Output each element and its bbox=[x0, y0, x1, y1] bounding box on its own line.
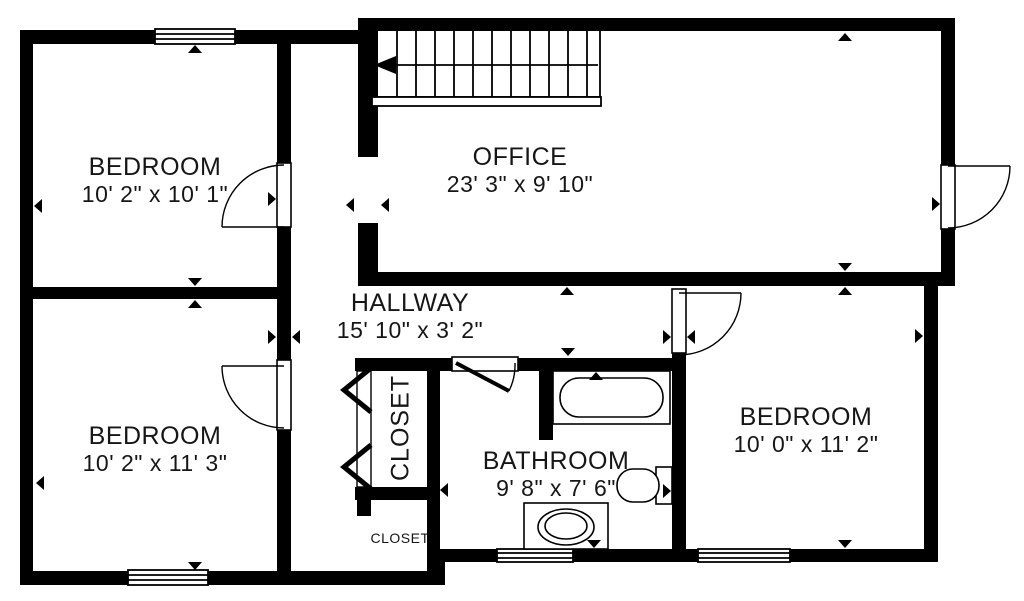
door-bathroom bbox=[452, 357, 518, 391]
wall-segment bbox=[277, 430, 291, 571]
room-label-hallway: HALLWAY 15' 10" x 3' 2" bbox=[337, 289, 483, 343]
wall-segment bbox=[790, 549, 938, 562]
marker bbox=[268, 330, 276, 344]
window-bedroom1 bbox=[155, 29, 235, 44]
marker bbox=[687, 330, 695, 344]
marker bbox=[36, 476, 44, 490]
room-dimensions: 10' 0" x 11' 2" bbox=[734, 431, 879, 457]
room-dimensions: 15' 10" x 3' 2" bbox=[337, 317, 483, 343]
room-name: BEDROOM bbox=[734, 403, 879, 431]
marker bbox=[34, 199, 42, 213]
marker bbox=[188, 562, 202, 570]
marker bbox=[838, 540, 852, 548]
door-bedroom1 bbox=[222, 163, 291, 227]
room-label-office: OFFICE 23' 3" x 9' 10" bbox=[447, 143, 593, 197]
marker bbox=[292, 330, 300, 344]
wall-segment bbox=[445, 549, 497, 562]
marker bbox=[838, 287, 852, 295]
wall-segment bbox=[357, 500, 371, 516]
room-label-closet: CLOSET bbox=[387, 375, 416, 481]
wall-segment bbox=[573, 549, 698, 562]
marker bbox=[440, 483, 448, 497]
wall-segment bbox=[672, 353, 686, 550]
window-bedroom3 bbox=[698, 549, 790, 562]
door-bedroom2 bbox=[222, 360, 291, 430]
room-dimensions: 23' 3" x 9' 10" bbox=[447, 171, 593, 197]
bathtub-icon bbox=[553, 371, 670, 424]
wall-segment bbox=[358, 18, 955, 31]
wall-segment bbox=[941, 31, 955, 165]
room-name: HALLWAY bbox=[337, 289, 483, 317]
closet-bifold-doors bbox=[344, 368, 371, 489]
marker bbox=[560, 287, 574, 295]
marker bbox=[838, 33, 852, 41]
marker bbox=[188, 45, 202, 53]
staircase bbox=[372, 31, 601, 106]
marker bbox=[268, 192, 276, 206]
room-label-bedroom1: BEDROOM 10' 2" x 10' 1" bbox=[82, 153, 228, 207]
room-label-bedroom2: BEDROOM 10' 2" x 11' 3" bbox=[83, 422, 228, 476]
door-bedroom3 bbox=[672, 289, 741, 355]
room-label-closet-small: CLOSET bbox=[370, 530, 429, 546]
marker bbox=[561, 348, 575, 356]
door-office-exterior bbox=[941, 165, 1010, 229]
wall-segment bbox=[20, 287, 291, 299]
window-bedroom2 bbox=[128, 570, 208, 585]
room-name: BEDROOM bbox=[82, 153, 228, 181]
room-name: OFFICE bbox=[447, 143, 593, 171]
wall-segment bbox=[358, 18, 378, 157]
wall-segment bbox=[360, 272, 955, 286]
floor-plan: BEDROOM 10' 2" x 10' 1" OFFICE 23' 3" x … bbox=[0, 0, 1024, 601]
marker bbox=[346, 198, 354, 212]
floor-plan-graphics bbox=[0, 0, 1024, 601]
wall-segment bbox=[924, 286, 938, 562]
room-name: BEDROOM bbox=[83, 422, 228, 450]
marker bbox=[838, 263, 852, 271]
wall-segment bbox=[20, 571, 445, 585]
marker bbox=[381, 198, 389, 212]
wall-segment bbox=[20, 30, 33, 585]
room-dimensions: 10' 2" x 11' 3" bbox=[83, 450, 228, 476]
wall-segment bbox=[941, 229, 955, 286]
wall-segment bbox=[277, 227, 291, 360]
room-dimensions: 9' 8" x 7' 6" bbox=[483, 475, 630, 501]
marker bbox=[915, 329, 923, 343]
marker bbox=[188, 278, 202, 286]
wall-segment bbox=[539, 371, 553, 440]
room-label-bathroom: BATHROOM 9' 8" x 7' 6" bbox=[483, 447, 630, 501]
wall-segment bbox=[518, 358, 672, 371]
room-label-bedroom3: BEDROOM 10' 0" x 11' 2" bbox=[734, 403, 879, 457]
marker bbox=[932, 197, 940, 211]
wall-segment bbox=[277, 30, 291, 163]
room-name: BATHROOM bbox=[483, 447, 630, 475]
room-dimensions: 10' 2" x 10' 1" bbox=[82, 181, 228, 207]
marker bbox=[663, 330, 671, 344]
window-bathroom bbox=[497, 549, 573, 562]
marker bbox=[188, 300, 202, 308]
